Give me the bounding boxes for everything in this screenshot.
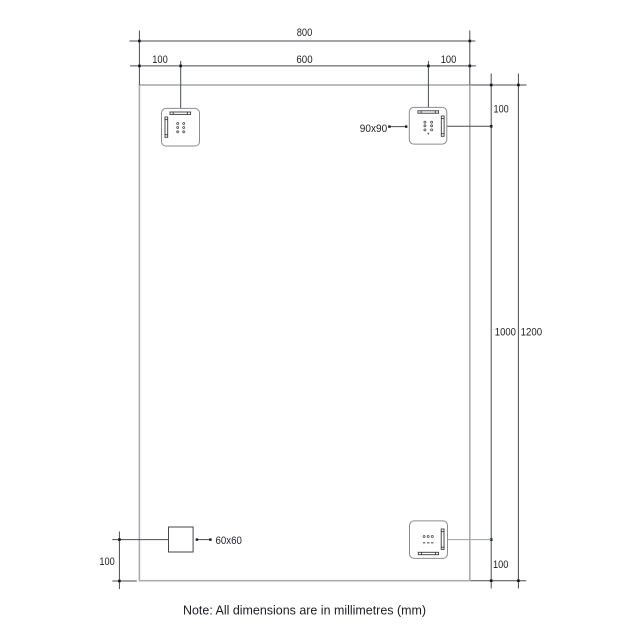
svg-text:600: 600 (296, 54, 312, 66)
svg-text:100: 100 (494, 104, 509, 116)
svg-text:90x90: 90x90 (360, 123, 387, 135)
svg-text:Note: All dimensions are in mi: Note: All dimensions are in millimetres … (183, 604, 426, 618)
svg-text:1000: 1000 (495, 327, 516, 339)
svg-text:100: 100 (441, 54, 457, 66)
svg-text:100: 100 (493, 559, 508, 571)
svg-text:60x60: 60x60 (216, 535, 242, 547)
svg-text:100: 100 (99, 556, 114, 568)
svg-text:800: 800 (297, 27, 313, 39)
svg-text:100: 100 (152, 54, 168, 66)
svg-text:1200: 1200 (521, 327, 543, 339)
